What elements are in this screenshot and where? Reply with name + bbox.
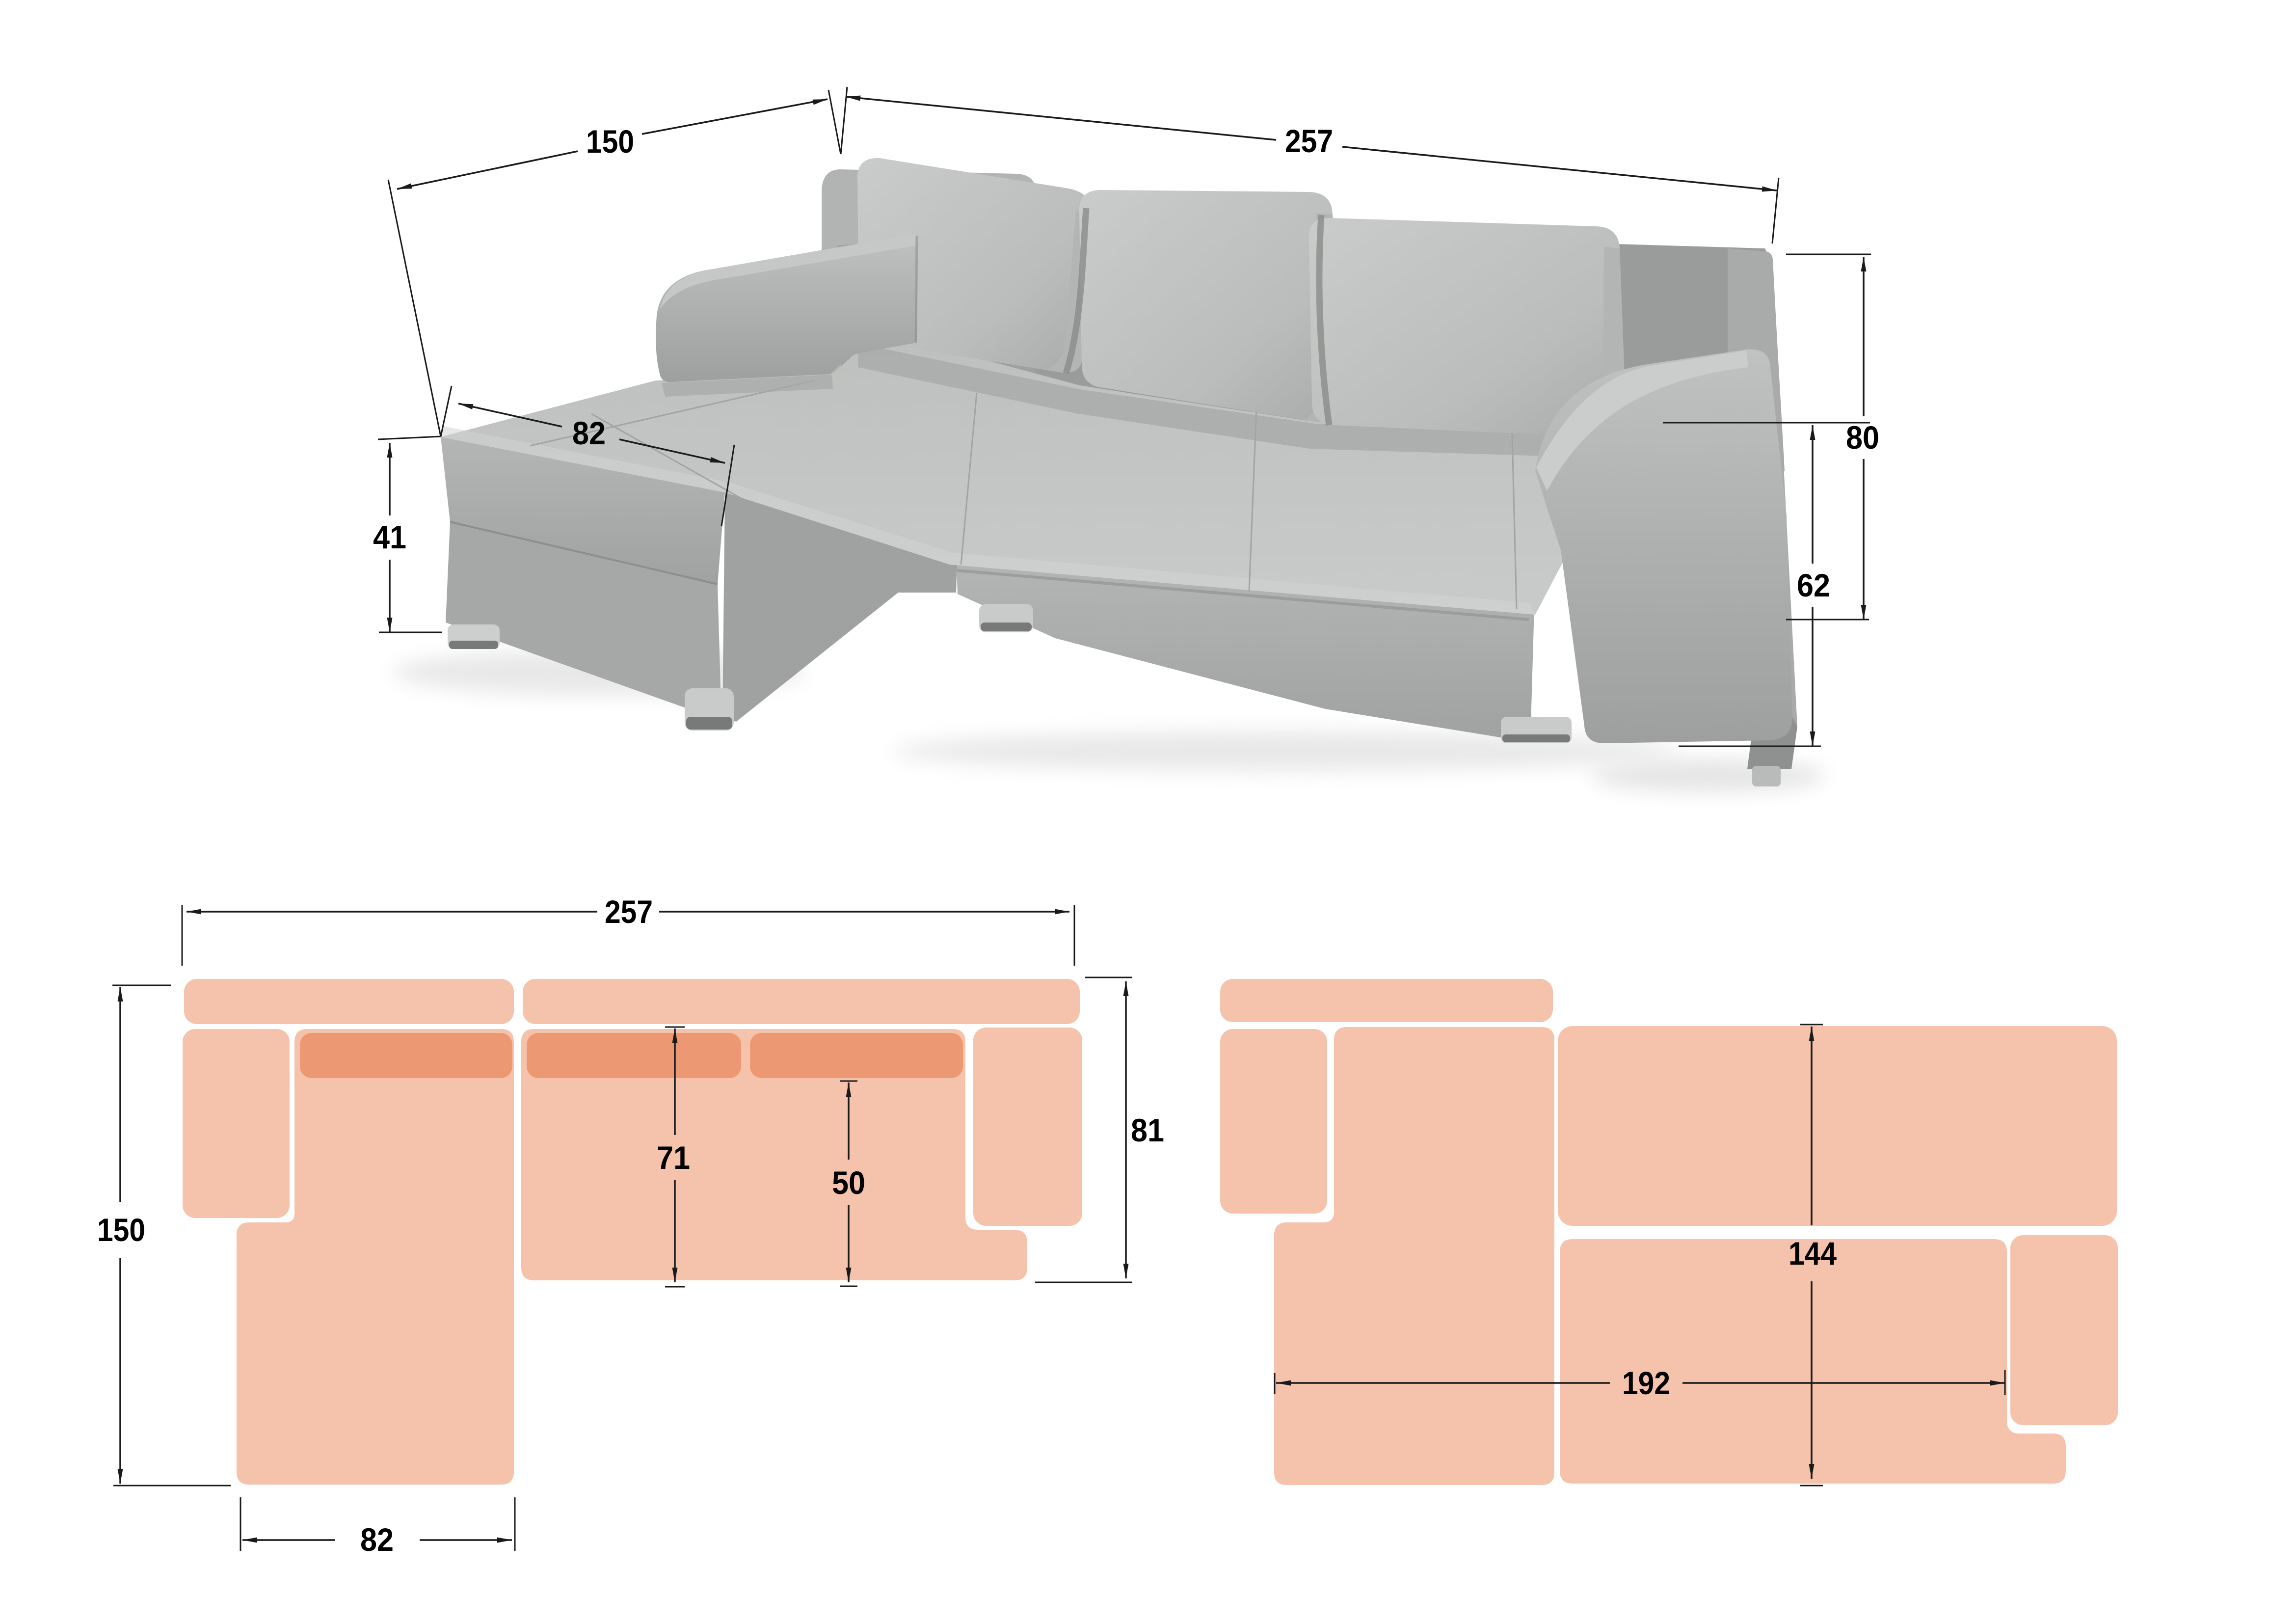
svg-text:71: 71	[657, 1139, 690, 1176]
svg-text:257: 257	[605, 893, 653, 930]
svg-text:62: 62	[1797, 567, 1830, 603]
svg-text:41: 41	[373, 519, 406, 555]
svg-text:192: 192	[1622, 1365, 1670, 1401]
svg-text:257: 257	[1285, 123, 1333, 159]
svg-text:150: 150	[97, 1212, 145, 1248]
svg-text:80: 80	[1846, 419, 1879, 456]
svg-text:144: 144	[1789, 1235, 1837, 1272]
svg-text:82: 82	[360, 1521, 394, 1558]
svg-text:82: 82	[572, 415, 606, 451]
svg-text:150: 150	[586, 123, 634, 160]
svg-text:50: 50	[832, 1164, 865, 1201]
svg-text:81: 81	[1131, 1112, 1164, 1148]
